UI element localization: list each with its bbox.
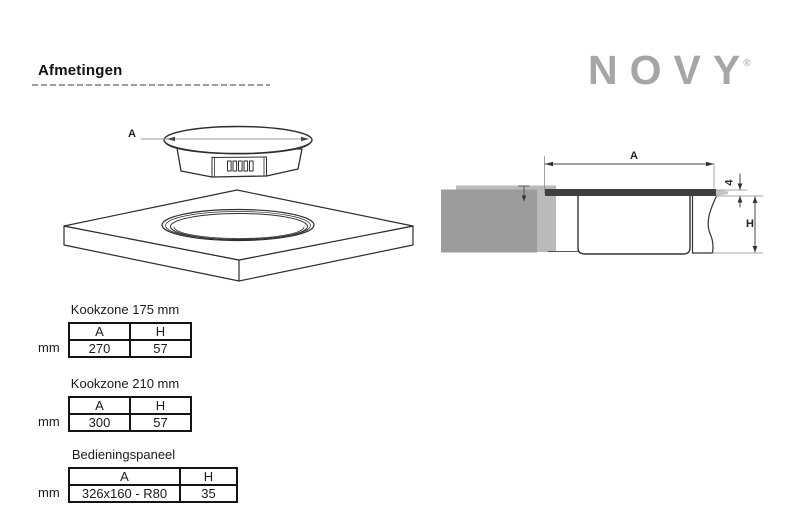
table-bedieningspaneel: Bedieningspaneel mm A H 326x160 - R80 35 [68, 447, 238, 503]
table-kookzone-175: Kookzone 175 mm mm A H 270 57 [68, 302, 192, 358]
unit-label: mm [38, 485, 64, 500]
table-title: Kookzone 175 mm [68, 302, 182, 317]
value-cell-a: 270 [69, 340, 130, 357]
table-header-row: A H [69, 468, 237, 485]
value-cell-a: 326x160 - R80 [69, 485, 180, 502]
section-view [441, 156, 763, 254]
dim-label-a-section: A [630, 151, 638, 162]
dim-label-h: H [746, 219, 754, 230]
control-panel-buttons [228, 161, 254, 171]
header-cell-a: A [69, 397, 130, 414]
technical-drawings [0, 0, 800, 511]
header-cell-h: H [130, 323, 191, 340]
value-cell-h: 57 [130, 414, 191, 431]
header-cell-h: H [130, 397, 191, 414]
dimensions-table: A H 270 57 [68, 322, 192, 358]
table-header-row: A H [69, 397, 191, 414]
cutout-hole [162, 210, 314, 241]
header-cell-a: A [69, 468, 180, 485]
table-value-row: 270 57 [69, 340, 191, 357]
unit-label: mm [38, 414, 64, 429]
header-cell-h: H [180, 468, 237, 485]
value-cell-h: 57 [130, 340, 191, 357]
table-value-row: 300 57 [69, 414, 191, 431]
worktop-section [441, 186, 556, 253]
unit-label: mm [38, 340, 64, 355]
cooktop-disc-top [164, 127, 312, 155]
dimension-h [712, 197, 763, 254]
cooktop-body-section [578, 195, 717, 254]
table-kookzone-210: Kookzone 210 mm mm A H 300 57 [68, 376, 192, 432]
value-cell-a: 300 [69, 414, 130, 431]
value-cell-h: 35 [180, 485, 237, 502]
table-title: Bedieningspaneel [68, 447, 179, 462]
dim-label-thickness: 4 [725, 179, 736, 185]
glass-plate [545, 189, 728, 196]
dimensions-table: A H 300 57 [68, 396, 192, 432]
isometric-view [64, 127, 413, 282]
table-value-row: 326x160 - R80 35 [69, 485, 237, 502]
dimensions-table: A H 326x160 - R80 35 [68, 467, 238, 503]
spec-sheet-page: Afmetingen NOVY® [0, 0, 800, 511]
table-title: Kookzone 210 mm [68, 376, 182, 391]
header-cell-a: A [69, 323, 130, 340]
dim-label-a-isometric: A [128, 129, 136, 140]
table-header-row: A H [69, 323, 191, 340]
